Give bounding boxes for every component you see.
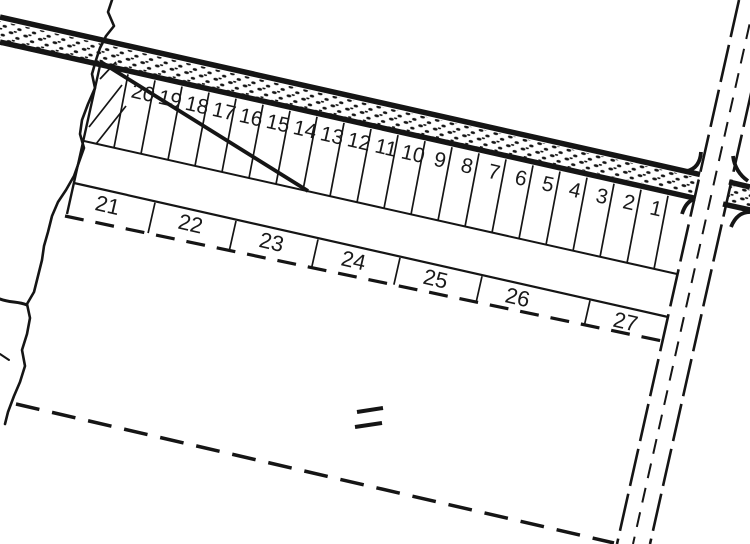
flare-northeast [733, 156, 748, 181]
rear-lot-number: 22 [176, 209, 205, 239]
cross-road-west-edge [617, 0, 739, 544]
lane-rear-line [74, 183, 668, 317]
front-lot-number: 11 [373, 135, 399, 162]
front-lot-number: 9 [432, 148, 449, 173]
front-lot-number: 12 [345, 128, 373, 156]
front-lot-number: 20 [129, 80, 157, 108]
rear-lot-labels: 21222324252627 [93, 190, 640, 336]
front-lot-number: 3 [594, 184, 611, 209]
block-west-boundary [67, 61, 101, 214]
rear-lot-number: 21 [93, 190, 122, 220]
front-lot-number: 17 [210, 98, 238, 126]
cross-road-centerline [633, 0, 750, 544]
parcel-block [16, 61, 677, 543]
front-lot-number: 2 [621, 190, 638, 215]
rear-lot-divider [312, 239, 318, 267]
front-lot-number: 15 [264, 110, 292, 138]
rear-row-dashed-boundary [65, 216, 662, 341]
front-lot-number: 4 [567, 178, 584, 203]
equals-mark-lower-dash [355, 423, 382, 427]
cross-road [617, 0, 750, 544]
front-lot-number: 14 [291, 116, 319, 144]
rear-lot-number: 24 [339, 246, 368, 276]
front-lot-number: 5 [540, 172, 557, 197]
front-lot-number: 10 [399, 140, 427, 168]
front-lot-number: 6 [513, 166, 530, 191]
rear-lot-divider [585, 301, 591, 325]
flare-southeast [731, 212, 750, 227]
front-lot-number: 1 [648, 196, 665, 221]
rear-lot-divider [394, 258, 400, 285]
front-lot-number: 8 [459, 154, 476, 179]
plat-map-sheet: 2019181716151413121110987654321 21222324… [0, 0, 750, 544]
front-lot-number: 16 [237, 104, 265, 132]
rear-lot-number: 23 [257, 227, 286, 257]
front-lot-number: 7 [486, 160, 503, 185]
front-lot-number: 13 [318, 122, 346, 150]
flare-northwest [687, 152, 701, 171]
rear-lot-divider [148, 203, 155, 233]
rear-lot-number: 25 [421, 264, 450, 294]
creek-branch [0, 299, 27, 305]
equals-mark-symbol [355, 408, 383, 427]
equals-mark-upper-dash [357, 408, 383, 412]
rear-lot-divider [229, 221, 236, 250]
plat-survey-drawing: 2019181716151413121110987654321 21222324… [0, 0, 750, 544]
rear-lot-divider [476, 276, 482, 302]
south-dashed-boundary [16, 404, 614, 543]
creek-edge-tick [0, 354, 9, 360]
main-road [0, 17, 750, 210]
